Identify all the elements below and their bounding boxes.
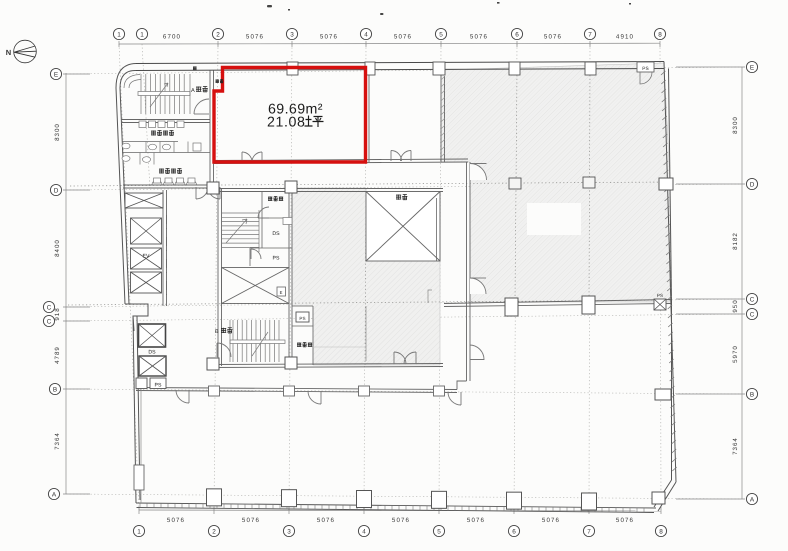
svg-text:A: A (52, 491, 57, 498)
svg-text:E: E (750, 64, 754, 71)
svg-text:PS: PS (273, 256, 280, 262)
svg-text:5: 5 (439, 31, 443, 38)
svg-text:4: 4 (362, 528, 366, 535)
svg-text:D: D (750, 181, 755, 188)
svg-text:A: A (191, 88, 195, 94)
svg-text:8400: 8400 (54, 239, 61, 257)
svg-text:C: C (750, 311, 755, 318)
svg-text:PS: PS (299, 316, 305, 321)
svg-text:1: 1 (140, 31, 144, 38)
svg-text:1: 1 (117, 31, 121, 38)
svg-text:C: C (750, 296, 755, 303)
svg-text:950: 950 (732, 299, 739, 312)
svg-text:5076: 5076 (394, 34, 412, 41)
svg-text:5970: 5970 (732, 345, 739, 363)
svg-text:7: 7 (587, 528, 591, 535)
svg-text:5076: 5076 (542, 517, 560, 524)
svg-text:4789: 4789 (54, 346, 61, 364)
svg-text:5076: 5076 (242, 517, 260, 524)
svg-text:E: E (280, 290, 283, 295)
svg-text:5076: 5076 (317, 517, 335, 524)
svg-text:2: 2 (212, 528, 216, 535)
svg-text:3: 3 (290, 31, 294, 38)
svg-text:6: 6 (515, 31, 519, 38)
svg-text:C: C (47, 304, 52, 311)
svg-text:4: 4 (364, 31, 368, 38)
svg-text:8: 8 (658, 31, 662, 38)
svg-text:5076: 5076 (467, 517, 485, 524)
svg-text:E: E (54, 71, 58, 78)
svg-text:B: B (750, 391, 754, 398)
svg-text:918: 918 (54, 307, 61, 320)
svg-text:N: N (6, 48, 11, 57)
svg-text:5076: 5076 (320, 34, 338, 41)
svg-text:5076: 5076 (167, 517, 185, 524)
svg-text:21.08: 21.08 (267, 115, 306, 131)
svg-text:2: 2 (216, 31, 220, 38)
svg-text:PS: PS (642, 66, 648, 72)
svg-text:8182: 8182 (732, 232, 739, 250)
svg-text:A: A (750, 496, 755, 503)
svg-text:5076: 5076 (544, 34, 562, 41)
svg-text:1: 1 (137, 528, 141, 535)
svg-text:DS: DS (148, 350, 156, 356)
svg-text:5076: 5076 (470, 34, 488, 41)
svg-text:5076: 5076 (246, 34, 264, 41)
svg-text:EV: EV (143, 254, 150, 260)
svg-text:DS: DS (272, 231, 280, 237)
svg-text:C: C (47, 318, 52, 325)
svg-text:7364: 7364 (54, 432, 61, 450)
svg-text:6700: 6700 (163, 34, 181, 41)
svg-text:5: 5 (437, 528, 441, 535)
svg-text:7: 7 (588, 31, 592, 38)
svg-text:7364: 7364 (732, 437, 739, 455)
svg-text:D: D (54, 187, 59, 194)
svg-text:8: 8 (659, 528, 663, 535)
svg-text:3: 3 (287, 528, 291, 535)
svg-text:4910: 4910 (616, 34, 634, 41)
svg-text:B: B (215, 329, 219, 335)
svg-text:6: 6 (512, 528, 516, 535)
svg-text:B: B (53, 386, 57, 393)
svg-text:5076: 5076 (392, 517, 410, 524)
svg-text:PS: PS (657, 293, 663, 298)
svg-text:5076: 5076 (616, 517, 634, 524)
svg-text:8300: 8300 (54, 123, 61, 141)
svg-text:8300: 8300 (732, 116, 739, 134)
svg-text:PS: PS (155, 383, 162, 389)
